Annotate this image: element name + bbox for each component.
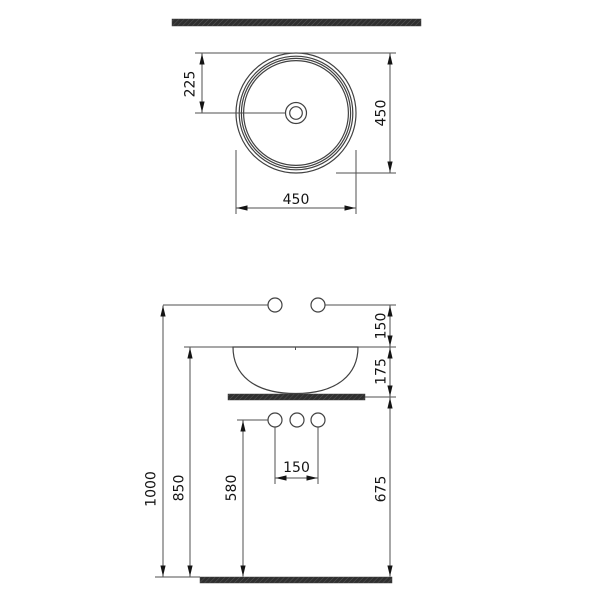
- supply-hole-left: [268, 413, 282, 427]
- dim-label-counter-clearance: 675: [374, 476, 390, 503]
- wall-section-bar: [172, 19, 421, 26]
- supply-hole-center: [290, 413, 304, 427]
- dim-label-depth: 450: [374, 100, 390, 127]
- basin-technical-drawing-page: 225 450 450 1000 850 150: [0, 0, 600, 600]
- drain-inner-circle: [290, 107, 303, 120]
- dim-label-supply-height: 580: [224, 475, 240, 502]
- basin-profile: [233, 347, 358, 394]
- supply-hole-right: [311, 413, 325, 427]
- dim-label-overall-height: 1000: [144, 471, 160, 507]
- drain-outer-circle: [286, 103, 307, 124]
- front-view: 1000 850 150 175 675 580 1: [144, 298, 396, 583]
- dim-label-rim-height: 850: [172, 475, 188, 502]
- faucet-hole-right: [311, 298, 325, 312]
- top-view: 225 450 450: [172, 19, 421, 214]
- floor-bar: [200, 577, 392, 583]
- dim-label-rim-to-faucet: 150: [374, 313, 390, 340]
- dim-label-basin-height: 175: [374, 358, 390, 385]
- faucet-hole-left: [268, 298, 282, 312]
- dim-label-width: 450: [283, 192, 310, 208]
- basin-technical-drawing: 225 450 450 1000 850 150: [0, 0, 600, 600]
- dim-label-hole-spacing: 150: [283, 460, 310, 476]
- dim-label-center-offset: 225: [183, 71, 199, 98]
- countertop-bar: [228, 394, 365, 400]
